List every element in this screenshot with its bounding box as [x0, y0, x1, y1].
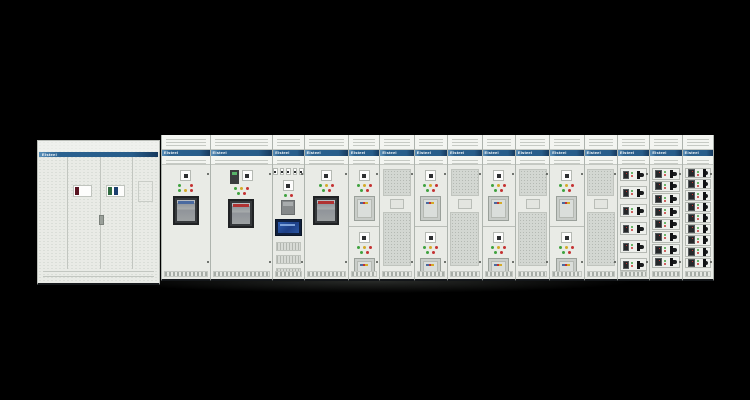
led-red-indicator — [500, 251, 503, 254]
position-indicator-frame — [242, 170, 253, 181]
feeder-module — [483, 232, 515, 271]
led-yellow-indicator — [363, 246, 366, 249]
drawer-status-dots — [664, 260, 666, 265]
label-window-2 — [106, 185, 125, 197]
led-green-indicator — [234, 187, 237, 190]
led-green-indicator — [494, 189, 497, 192]
breaker-faceplate — [317, 200, 335, 221]
louver-line — [654, 145, 677, 146]
drawer-status-dot — [697, 241, 699, 243]
indicator-led-block — [349, 184, 379, 192]
louver-line — [622, 145, 645, 146]
position-indicator-core — [362, 174, 366, 178]
drawer-status-dot — [664, 197, 666, 199]
indicator-led-block — [550, 246, 583, 254]
withdrawable-drawer — [685, 190, 711, 200]
indicator-chip-core — [300, 171, 302, 173]
drawer-status-dots — [697, 204, 699, 209]
mini-indicator-strip — [273, 168, 303, 175]
louver-line — [215, 145, 269, 146]
drawer-status-dot — [697, 218, 699, 220]
indicator-led-row — [426, 189, 435, 192]
drawer-display — [655, 208, 661, 216]
louver-line — [520, 145, 545, 146]
drawer-status-dots — [664, 197, 666, 202]
led-green-indicator — [319, 184, 322, 187]
section-control-hmi: Elsteel — [272, 135, 303, 281]
drawer-display — [688, 180, 695, 188]
position-indicator-frame — [425, 170, 436, 181]
drawer-status-dots — [664, 209, 666, 214]
section-door — [380, 165, 413, 271]
ventilation-louvers — [516, 156, 549, 165]
indicator-led-block — [483, 246, 515, 254]
louver-line — [622, 142, 645, 143]
drawer-rotary-handle — [670, 222, 677, 226]
feeder-breaker-faceplate — [357, 261, 372, 271]
control-cluster — [305, 170, 348, 181]
section-door — [415, 165, 447, 271]
drawer-status-dot — [631, 229, 633, 231]
corner-frame-detail — [138, 181, 153, 202]
upper-mesh-panel — [451, 169, 479, 196]
control-cluster — [349, 170, 379, 181]
louver-line — [353, 142, 375, 143]
indicator-chip-core — [287, 171, 289, 173]
drawer-display — [655, 182, 661, 190]
led-red-indicator — [366, 251, 369, 254]
louver-line — [166, 160, 206, 161]
withdrawable-drawer — [685, 168, 711, 178]
feeder-breaker-window — [488, 196, 509, 221]
position-indicator-frame — [283, 180, 294, 191]
drawer-rotary-handle — [703, 238, 708, 242]
position-indicator-frame — [425, 232, 436, 243]
ventilation-louvers — [380, 156, 413, 165]
led-green-indicator — [423, 246, 426, 249]
indicator-chip-core — [281, 171, 283, 173]
led-yellow-indicator — [497, 184, 500, 187]
drawer-status-dot — [664, 187, 666, 189]
position-indicator-core — [324, 174, 328, 178]
drawer-display — [623, 261, 629, 269]
drawer-status-dot — [664, 234, 666, 236]
indicator-led-row — [284, 194, 293, 197]
drawer-status-dots — [631, 208, 633, 213]
feeder-breaker-faceplate — [423, 199, 438, 218]
drawer-status-dot — [697, 227, 699, 229]
drawer-status-dots — [697, 227, 699, 232]
drawer-rotary-handle — [670, 248, 677, 252]
drawer-display — [688, 203, 695, 211]
ventilation-louvers — [683, 156, 713, 165]
feeder-module — [415, 232, 447, 271]
led-green-indicator — [237, 192, 240, 195]
louver-line — [487, 145, 511, 146]
position-indicator-frame — [493, 232, 504, 243]
drawer-status-dot — [697, 263, 699, 265]
multimeter-device — [230, 170, 239, 184]
louver-line — [166, 139, 206, 140]
position-indicator-core — [245, 174, 249, 178]
louver-line — [554, 160, 579, 161]
led-red-indicator — [435, 246, 438, 249]
drawer-status-dot — [631, 262, 633, 264]
louver-line — [419, 163, 443, 164]
led-red-indicator — [568, 251, 571, 254]
drawer-status-dots — [697, 238, 699, 243]
led-red-indicator — [503, 184, 506, 187]
drawer-status-dot — [697, 230, 699, 232]
withdrawable-drawer — [652, 193, 679, 205]
louver-line — [309, 160, 344, 161]
breaker-faceplate — [177, 200, 195, 221]
bottom-vent-strip — [213, 271, 271, 277]
perforated-mesh-door — [450, 212, 479, 266]
led-red-indicator — [432, 189, 435, 192]
drawer-display — [688, 214, 695, 222]
led-yellow-indicator — [363, 184, 366, 187]
control-cluster — [415, 232, 447, 243]
led-green-indicator — [360, 189, 363, 192]
louver-line — [589, 142, 613, 143]
withdrawable-drawer — [652, 244, 679, 256]
ventilation-louvers — [349, 135, 379, 150]
feeder-breaker-window — [420, 196, 441, 221]
door-handle-plate — [594, 199, 608, 209]
led-yellow-indicator — [565, 246, 568, 249]
position-indicator-core — [497, 174, 501, 178]
section-mesh-door-2: Elsteel — [447, 135, 481, 281]
indicator-led-row — [559, 246, 574, 249]
drawer-status-dots — [664, 222, 666, 227]
drawer-rotary-handle — [637, 245, 644, 249]
indicator-led-row — [494, 189, 503, 192]
drawer-status-dot — [664, 247, 666, 249]
louver-line — [277, 163, 299, 164]
louver-line — [419, 160, 443, 161]
drawer-status-dot — [664, 200, 666, 202]
louver-line — [277, 160, 299, 161]
louver-line — [520, 139, 545, 140]
withdrawable-drawer — [685, 224, 711, 234]
section-feeder-3: Elsteel — [482, 135, 515, 281]
air-circuit-breaker-window — [173, 196, 199, 225]
louver-line — [353, 163, 375, 164]
section-feeder-4: Elsteel — [549, 135, 583, 281]
drawer-status-dot — [697, 215, 699, 217]
indicator-led-row — [357, 184, 372, 187]
louver-line — [309, 139, 344, 140]
louver-line — [520, 163, 545, 164]
bottom-vent-strip — [450, 271, 479, 277]
drawer-rotary-handle — [670, 235, 677, 239]
indicator-led-row — [562, 251, 571, 254]
door-handle-plate — [458, 199, 472, 209]
feeder-breaker-window — [354, 258, 375, 271]
section-feeder-2: Elsteel — [414, 135, 447, 281]
hmi-touch-panel — [275, 219, 302, 236]
drawer-rotary-handle — [703, 261, 708, 265]
drawer-rotary-handle — [703, 205, 708, 209]
withdrawable-drawer — [685, 247, 711, 257]
indicator-led-row — [360, 189, 369, 192]
ventilation-louvers — [448, 156, 481, 165]
bottom-vent-strip — [518, 271, 547, 277]
louver-line — [309, 142, 344, 143]
feeder-module — [349, 170, 379, 227]
hmi-screen — [278, 222, 299, 233]
terminal-block-row — [276, 255, 300, 264]
control-cluster — [211, 170, 273, 184]
louver-line — [384, 142, 409, 143]
drawer-display — [688, 225, 695, 233]
drawer-status-dot — [664, 260, 666, 262]
position-indicator-frame — [493, 170, 504, 181]
led-green-indicator — [491, 184, 494, 187]
drawer-status-dot — [697, 204, 699, 206]
ventilation-louvers — [683, 135, 713, 150]
bottom-vent-strip — [164, 271, 208, 277]
drawer-display — [688, 259, 695, 267]
drawer-status-dots — [697, 260, 699, 265]
drawer-status-dot — [664, 184, 666, 186]
louver-line — [166, 145, 206, 146]
indicator-led-row — [562, 189, 571, 192]
bottom-vent-strip — [485, 271, 513, 277]
feeder-module — [415, 170, 447, 227]
louver-line — [353, 160, 375, 161]
led-red-indicator — [246, 187, 249, 190]
louver-line — [554, 145, 579, 146]
feeder-module — [349, 232, 379, 271]
drawer-status-dot — [631, 247, 633, 249]
withdrawable-drawer — [620, 186, 647, 199]
louver-line — [622, 163, 645, 164]
bottom-vent-strip — [307, 271, 346, 277]
drawer-rotary-handle — [670, 260, 677, 264]
withdrawable-drawer — [652, 168, 679, 180]
section-mesh-door-1: Elsteel — [379, 135, 413, 281]
ventilation-louvers — [483, 156, 515, 165]
section-door — [349, 165, 379, 271]
drawer-display — [623, 225, 629, 233]
breaker-faceplate — [232, 203, 250, 224]
led-red-indicator — [571, 184, 574, 187]
door-seam — [67, 157, 68, 269]
feeder-breaker-window — [488, 258, 509, 271]
led-green-indicator — [426, 189, 429, 192]
led-red-indicator — [243, 192, 246, 195]
air-circuit-breaker-window — [313, 196, 339, 225]
feeder-breaker-faceplate — [357, 199, 372, 218]
air-circuit-breaker-window — [228, 199, 254, 228]
drawer-status-dot — [697, 193, 699, 195]
withdrawable-drawer — [620, 204, 647, 217]
led-green-indicator — [559, 184, 562, 187]
led-green-indicator — [357, 184, 360, 187]
position-indicator-core — [362, 236, 366, 240]
led-green-indicator — [357, 246, 360, 249]
ventilation-louvers — [585, 156, 617, 165]
drawer-rotary-handle — [637, 227, 644, 231]
drawer-rotary-handle — [703, 250, 708, 254]
led-red-indicator — [369, 184, 372, 187]
louver-line — [687, 145, 709, 146]
led-red-indicator — [190, 189, 193, 192]
drawer-status-dot — [697, 238, 699, 240]
drawer-status-dot — [697, 171, 699, 173]
indicator-led-row — [494, 251, 503, 254]
indicator-led-row — [360, 251, 369, 254]
indicator-led-block — [483, 184, 515, 192]
louver-line — [277, 139, 299, 140]
perforated-mesh-door — [587, 212, 615, 266]
indicator-led-row — [237, 192, 246, 195]
drawer-display — [655, 233, 661, 241]
indicator-led-row — [426, 251, 435, 254]
drawer-status-dot — [664, 263, 666, 265]
louver-line — [554, 142, 579, 143]
led-yellow-indicator — [565, 184, 568, 187]
drawer-status-dot — [697, 249, 699, 251]
ventilation-louvers — [618, 135, 649, 150]
ventilation-louvers — [415, 135, 447, 150]
door-handle-plate — [526, 199, 540, 209]
door-seam — [132, 157, 133, 269]
led-yellow-indicator — [429, 184, 432, 187]
led-green-indicator — [562, 189, 565, 192]
position-indicator-core — [565, 236, 569, 240]
louver-line — [452, 142, 477, 143]
drawer-status-dot — [697, 174, 699, 176]
louver-line — [419, 142, 443, 143]
ventilation-louvers — [516, 135, 549, 150]
drawer-rotary-handle — [703, 216, 708, 220]
withdrawable-drawer — [685, 202, 711, 212]
louver-line — [166, 142, 206, 143]
louver-line — [687, 142, 709, 143]
drawer-rotary-handle — [703, 194, 708, 198]
withdrawable-drawer — [620, 240, 647, 253]
drawer-status-dot — [664, 209, 666, 211]
terminal-block-row — [276, 242, 300, 251]
position-indicator-core — [184, 174, 188, 178]
ventilation-louvers — [380, 135, 413, 150]
section-door — [516, 165, 549, 271]
drawer-status-dot — [631, 190, 633, 192]
drawer-status-dots — [697, 193, 699, 198]
withdrawable-drawer — [652, 256, 679, 268]
drawer-status-dot — [631, 226, 633, 228]
louver-line — [622, 139, 645, 140]
led-green-indicator — [494, 251, 497, 254]
section-door — [650, 165, 681, 271]
indicator-chip — [273, 168, 277, 175]
louver-line — [309, 145, 344, 146]
led-red-indicator — [328, 189, 331, 192]
indicator-led-row — [357, 246, 372, 249]
ventilation-louvers — [273, 135, 303, 150]
drawer-status-dot — [631, 208, 633, 210]
drawer-rotary-handle — [670, 184, 677, 188]
drawer-status-dots — [631, 190, 633, 195]
feeder-breaker-faceplate — [491, 199, 506, 218]
terminal-block-stack — [273, 242, 303, 271]
louver-line — [452, 160, 477, 161]
drawer-display — [688, 248, 695, 256]
section-door — [618, 165, 649, 271]
drawer-status-dots — [664, 247, 666, 252]
position-indicator-frame — [561, 170, 572, 181]
drawer-status-dot — [697, 252, 699, 254]
ventilation-louvers — [211, 156, 273, 165]
indicator-chip — [280, 168, 284, 175]
feeder-module — [550, 170, 583, 227]
louver-line — [687, 163, 709, 164]
led-red-indicator — [290, 194, 293, 197]
position-indicator-frame — [561, 232, 572, 243]
ventilation-louvers — [650, 135, 681, 150]
drawer-display — [688, 169, 695, 177]
led-green-indicator — [322, 189, 325, 192]
led-green-indicator — [491, 246, 494, 249]
drawer-status-dot — [697, 185, 699, 187]
louver-line — [215, 142, 269, 143]
ventilation-louvers — [448, 135, 481, 150]
indicator-led-row — [234, 187, 249, 190]
led-red-indicator — [190, 184, 193, 187]
switchboard-row: ElsteelElsteelElsteelElsteelElsteelElste… — [161, 135, 714, 281]
ventilation-louvers — [650, 156, 681, 165]
withdrawable-drawer — [685, 235, 711, 245]
perforated-mesh-door — [383, 212, 412, 266]
drawer-rotary-handle — [637, 209, 644, 213]
louver-line — [419, 139, 443, 140]
led-yellow-indicator — [497, 246, 500, 249]
indicator-led-row — [491, 246, 506, 249]
left-distribution-cabinet: Elsteel — [37, 140, 160, 285]
led-green-indicator — [178, 189, 181, 192]
drawer-status-dots — [697, 215, 699, 220]
louver-line — [215, 163, 269, 164]
louver-line — [520, 142, 545, 143]
withdrawable-drawer — [652, 231, 679, 243]
drawer-status-dot — [697, 196, 699, 198]
control-cluster — [550, 232, 583, 243]
control-cluster — [483, 170, 515, 181]
drawer-status-dot — [664, 174, 666, 176]
drawer-display — [655, 195, 661, 203]
drawer-status-dot — [697, 260, 699, 262]
ventilation-louvers — [618, 156, 649, 165]
indicator-led-row — [178, 184, 193, 187]
drawer-rotary-handle — [670, 197, 677, 201]
drawer-status-dot — [631, 244, 633, 246]
feeder-breaker-faceplate — [559, 261, 574, 271]
louver-line — [309, 163, 344, 164]
bottom-vent-strip — [685, 271, 711, 277]
louver-line — [487, 160, 511, 161]
bottom-vent-rows — [43, 270, 154, 279]
louver-line — [215, 160, 269, 161]
louver-line — [277, 145, 299, 146]
section-door — [483, 165, 515, 271]
position-indicator-core — [497, 236, 501, 240]
section-door — [550, 165, 583, 271]
led-red-indicator — [432, 251, 435, 254]
position-indicator-core — [429, 174, 433, 178]
